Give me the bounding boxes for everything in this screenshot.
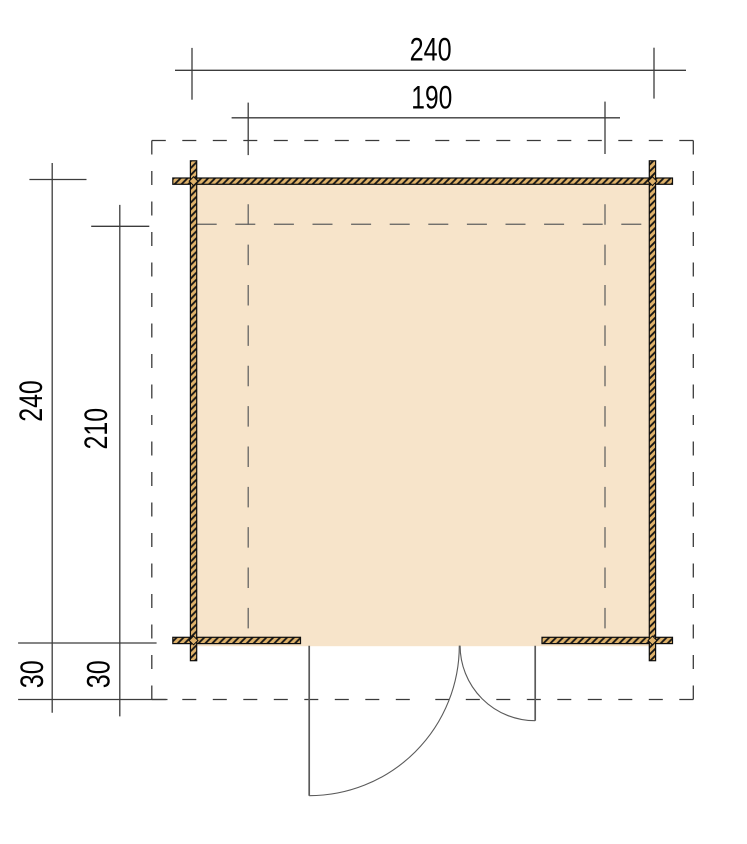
svg-text:190: 190 [411, 80, 452, 116]
svg-text:240: 240 [410, 31, 452, 67]
svg-text:210: 210 [78, 408, 114, 450]
svg-text:240: 240 [13, 380, 49, 422]
svg-text:30: 30 [14, 660, 50, 688]
svg-text:30: 30 [81, 660, 117, 688]
